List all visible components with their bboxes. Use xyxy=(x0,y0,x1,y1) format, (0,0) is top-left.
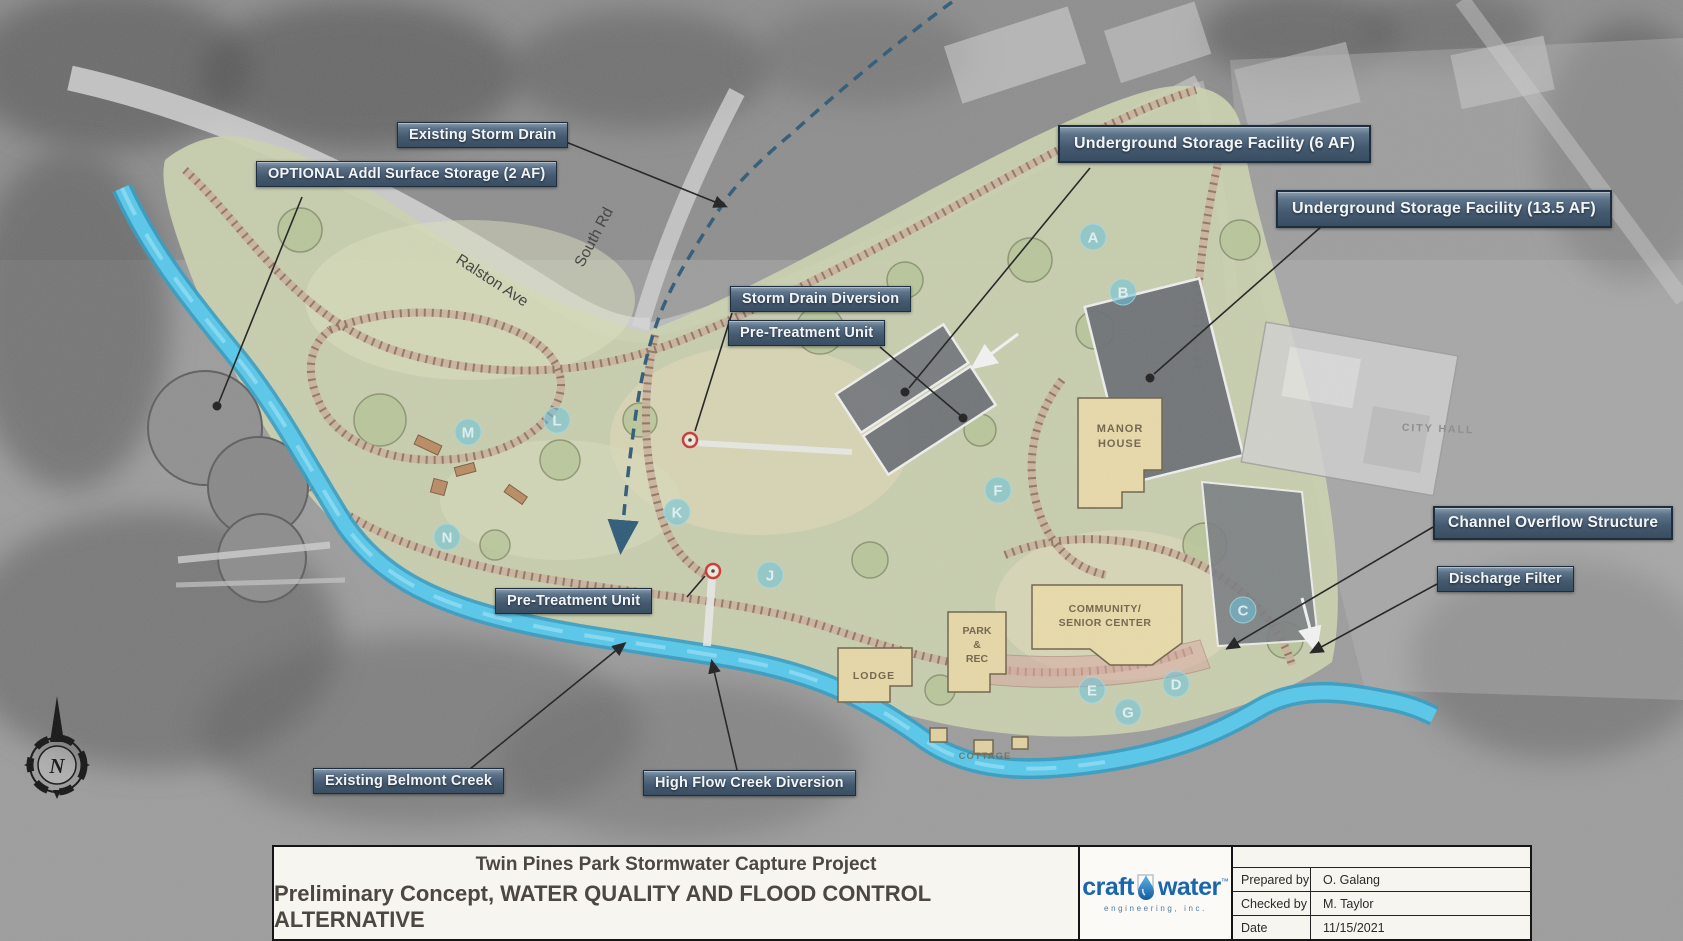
title-block: Twin Pines Park Stormwater Capture Proje… xyxy=(272,845,1532,941)
date-label: Date xyxy=(1233,916,1311,939)
checked-by-value: M. Taylor xyxy=(1311,897,1530,911)
label-discharge-filter: Discharge Filter xyxy=(1437,566,1574,592)
prepared-by-label: Prepared by xyxy=(1233,868,1311,891)
site-map: MANOR HOUSE COMMUNITY/ SENIOR CENTER PAR… xyxy=(0,0,1683,941)
prepared-by-value: O. Galang xyxy=(1311,873,1530,887)
sheet-title-line1: Twin Pines Park Stormwater Capture Proje… xyxy=(476,854,877,876)
sheet-title-line2: Preliminary Concept, WATER QUALITY AND F… xyxy=(274,881,1078,933)
label-underground-storage-6af: Underground Storage Facility (6 AF) xyxy=(1058,125,1371,163)
label-pre-treatment-unit-lower: Pre-Treatment Unit xyxy=(495,588,652,614)
info-row-empty xyxy=(1233,847,1530,868)
logo-cell: craft water ™ engineering, inc. xyxy=(1078,847,1231,939)
label-existing-belmont-creek: Existing Belmont Creek xyxy=(313,768,504,794)
label-storm-drain-diversion: Storm Drain Diversion xyxy=(730,286,911,312)
label-optional-surface-storage: OPTIONAL Addl Surface Storage (2 AF) xyxy=(256,161,557,187)
logo-word-water: water xyxy=(1158,875,1221,900)
sheet-title-cell: Twin Pines Park Stormwater Capture Proje… xyxy=(274,847,1078,939)
info-row-date: Date 11/15/2021 xyxy=(1233,916,1530,939)
logo-trademark: ™ xyxy=(1221,878,1229,886)
info-row-checked: Checked by M. Taylor xyxy=(1233,892,1530,916)
label-channel-overflow-structure: Channel Overflow Structure xyxy=(1433,506,1673,540)
date-value: 11/15/2021 xyxy=(1311,921,1530,935)
label-high-flow-creek-diversion: High Flow Creek Diversion xyxy=(643,770,856,796)
grain-overlay xyxy=(0,0,1683,941)
water-drop-icon xyxy=(1135,873,1157,901)
craftwater-logo: craft water ™ xyxy=(1082,873,1229,901)
logo-subtitle: engineering, inc. xyxy=(1104,904,1207,913)
label-underground-storage-13af: Underground Storage Facility (13.5 AF) xyxy=(1276,190,1612,228)
checked-by-label: Checked by xyxy=(1233,892,1311,915)
label-pre-treatment-unit-upper: Pre-Treatment Unit xyxy=(728,320,885,346)
label-existing-storm-drain: Existing Storm Drain xyxy=(397,122,568,148)
info-row-prepared: Prepared by O. Galang xyxy=(1233,868,1530,892)
plan-sheet: MANOR HOUSE COMMUNITY/ SENIOR CENTER PAR… xyxy=(0,0,1683,941)
logo-word-craft: craft xyxy=(1082,875,1134,900)
info-table: Prepared by O. Galang Checked by M. Tayl… xyxy=(1231,847,1530,939)
